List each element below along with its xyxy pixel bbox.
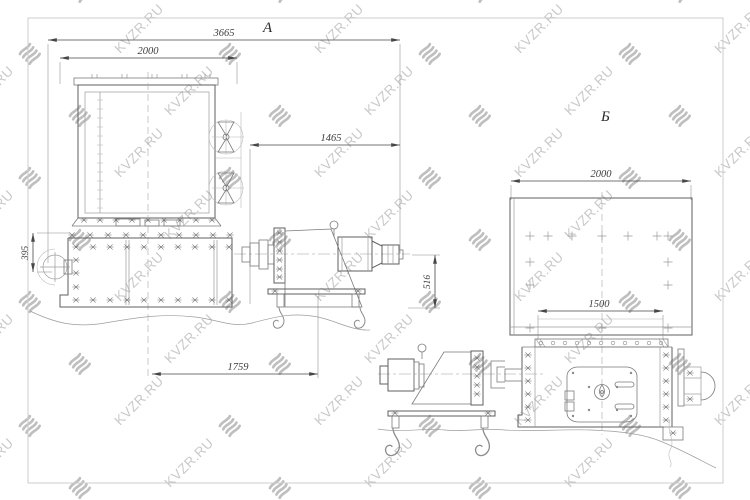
- watermark-text: KVZR.RU: [0, 63, 17, 118]
- dim-cooler-width-label: 2000: [138, 46, 160, 57]
- watermark-logo-icon: [670, 0, 690, 2]
- watermark-text: KVZR.RU: [712, 125, 750, 180]
- watermark-logo-icon: [670, 106, 690, 126]
- lifting-hook: [354, 307, 365, 328]
- dim-housing-width-label: 1500: [589, 299, 611, 310]
- watermark-logo-icon: [470, 354, 490, 374]
- technical-drawing: KVZR.RUKVZR.RUKVZR.RUKVZR.RUKVZR.RUKVZR.…: [0, 0, 750, 500]
- watermark-text: KVZR.RU: [512, 1, 567, 56]
- door-hinge: [565, 391, 574, 400]
- watermark-text: KVZR.RU: [712, 1, 750, 56]
- watermark-text: KVZR.RU: [562, 187, 617, 242]
- dim-total-length-label: 3665: [213, 28, 235, 39]
- watermark-text: KVZR.RU: [362, 435, 417, 490]
- watermark-logo-icon: [620, 416, 640, 436]
- watermark-logo-icon: [620, 44, 640, 64]
- watermark-logo-icon: [420, 168, 440, 188]
- watermark-logo-icon: [70, 354, 90, 374]
- watermark-text: KVZR.RU: [162, 63, 217, 118]
- watermark-logo-icon: [620, 168, 640, 188]
- side-pulley: [37, 249, 72, 285]
- watermark-logo-icon: [670, 230, 690, 250]
- belt-guard: [412, 352, 471, 404]
- watermark-logo-icon: [420, 44, 440, 64]
- watermark-text: KVZR.RU: [112, 125, 167, 180]
- watermark-logo-icon: [470, 230, 490, 250]
- drive-assembly-a: [234, 221, 410, 328]
- watermark-logo-icon: [20, 44, 40, 64]
- watermark-text: KVZR.RU: [162, 187, 217, 242]
- fan-wheel-top: [209, 120, 244, 154]
- watermark-logo-icon: [670, 478, 690, 498]
- watermark-text: KVZR.RU: [562, 435, 617, 490]
- watermark-text: KVZR.RU: [0, 435, 17, 490]
- lifting-hook: [476, 428, 490, 456]
- watermark-logo-icon: [20, 168, 40, 188]
- watermark-logo-icon: [220, 416, 240, 436]
- dim-panel-width-label: 2000: [591, 169, 613, 180]
- dim-base-span-label: 1759: [228, 362, 250, 373]
- eye-bolt: [418, 344, 426, 352]
- door-hinge: [565, 402, 574, 411]
- drive-base-rail: [388, 411, 495, 416]
- view-a: А 3665 2000 1465 516 395 1759: [21, 20, 440, 380]
- watermark-logo-icon: [70, 106, 90, 126]
- view-b-label: Б: [600, 109, 610, 125]
- watermark-text: KVZR.RU: [312, 1, 367, 56]
- watermark-logo-icon: [470, 478, 490, 498]
- watermark-text: KVZR.RU: [362, 187, 417, 242]
- watermark-logo-icon: [20, 292, 40, 312]
- watermark-text: KVZR.RU: [0, 311, 17, 366]
- watermark-text: KVZR.RU: [312, 249, 367, 304]
- watermark-logo-icon: [220, 292, 240, 312]
- view-a-label: А: [262, 20, 273, 36]
- inspection-door: [565, 367, 637, 422]
- watermark-logo-icon: [420, 416, 440, 436]
- watermark-logo-icon: [270, 354, 290, 374]
- dim-drive-height-label: 516: [423, 275, 433, 290]
- eye-bolt: [330, 221, 338, 229]
- watermark-text: KVZR.RU: [162, 435, 217, 490]
- dim-drive-length-label: 1465: [321, 133, 342, 144]
- watermark-text: KVZR.RU: [0, 187, 17, 242]
- watermark-text: KVZR.RU: [362, 63, 417, 118]
- watermark-logo-icon: [220, 44, 240, 64]
- motor-body-b: [388, 359, 414, 391]
- dim-side-offset-label: 395: [21, 246, 31, 262]
- watermark-logo-icon: [470, 0, 490, 2]
- watermark-text: KVZR.RU: [362, 311, 417, 366]
- watermark-text: KVZR.RU: [512, 125, 567, 180]
- watermark-logo-icon: [270, 478, 290, 498]
- watermark-text: KVZR.RU: [712, 249, 750, 304]
- watermark-logo-icon: [70, 478, 90, 498]
- watermark-logo-icon: [420, 292, 440, 312]
- watermark-text: KVZR.RU: [312, 373, 367, 428]
- watermark-text: KVZR.RU: [112, 373, 167, 428]
- watermark-text: KVZR.RU: [712, 373, 750, 428]
- watermark-logo-icon: [220, 168, 240, 188]
- watermark-text: KVZR.RU: [512, 249, 567, 304]
- watermark-logo-icon: [270, 0, 290, 2]
- drawing-page: KVZR.RUKVZR.RUKVZR.RUKVZR.RUKVZR.RUKVZR.…: [0, 0, 750, 500]
- support-foot: [663, 427, 683, 440]
- door-slot-handle: [615, 404, 634, 409]
- watermark-logo-icon: [620, 292, 640, 312]
- watermark-logo-icon: [470, 106, 490, 126]
- watermark-logo-icon: [20, 416, 40, 436]
- watermark-text: KVZR.RU: [112, 249, 167, 304]
- watermark-logo-icon: [70, 0, 90, 2]
- watermark-logo-icon: [670, 354, 690, 374]
- watermark-logo-icon: [270, 106, 290, 126]
